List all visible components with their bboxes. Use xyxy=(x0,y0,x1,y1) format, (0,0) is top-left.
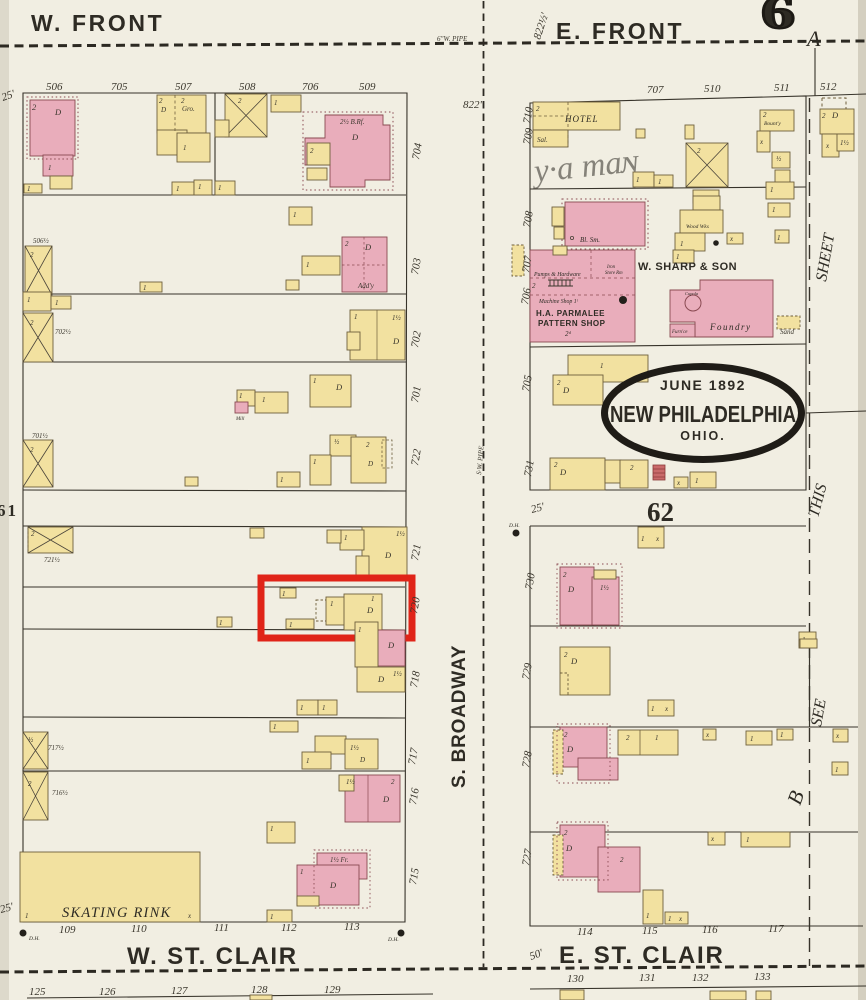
svg-text:1: 1 xyxy=(600,362,604,370)
svg-text:707: 707 xyxy=(647,84,664,96)
svg-text:Bount'y: Bount'y xyxy=(764,121,781,127)
svg-text:2ᵈ: 2ᵈ xyxy=(565,330,572,338)
svg-text:D: D xyxy=(570,656,578,666)
svg-text:1: 1 xyxy=(770,186,774,194)
svg-text:Gro.: Gro. xyxy=(182,105,195,113)
svg-text:1: 1 xyxy=(636,176,640,184)
svg-text:1: 1 xyxy=(835,766,839,774)
svg-text:E. ST. CLAIR: E. ST. CLAIR xyxy=(559,942,725,969)
svg-text:Furn'ce: Furn'ce xyxy=(671,330,688,335)
svg-text:1: 1 xyxy=(262,396,266,404)
svg-text:Iron: Iron xyxy=(606,265,616,270)
svg-text:1: 1 xyxy=(300,868,304,876)
svg-text:706: 706 xyxy=(302,81,319,93)
svg-text:508: 508 xyxy=(239,81,256,93)
svg-text:PATTERN SHOP: PATTERN SHOP xyxy=(538,319,606,328)
svg-text:1: 1 xyxy=(330,600,334,608)
svg-text:1: 1 xyxy=(655,734,659,742)
svg-text:1: 1 xyxy=(25,912,29,920)
svg-text:1: 1 xyxy=(218,184,222,192)
svg-text:822': 822' xyxy=(463,99,483,111)
svg-text:61: 61 xyxy=(0,501,18,520)
svg-text:1: 1 xyxy=(322,704,326,712)
svg-text:1½ Fr.: 1½ Fr. xyxy=(330,856,349,864)
svg-text:2: 2 xyxy=(366,441,370,449)
svg-text:D: D xyxy=(387,640,395,650)
svg-text:D: D xyxy=(392,336,400,346)
svg-text:D: D xyxy=(54,107,62,117)
svg-text:511: 511 xyxy=(774,82,790,94)
svg-text:D.H.: D.H. xyxy=(387,937,399,943)
svg-text:Machine Shop 1⁭ᵗ: Machine Shop 1⁭ᵗ xyxy=(538,299,579,305)
svg-text:717½: 717½ xyxy=(48,744,65,752)
svg-text:A: A xyxy=(805,26,821,51)
svg-text:D: D xyxy=(329,880,337,890)
svg-text:D: D xyxy=(351,132,359,142)
svg-text:1: 1 xyxy=(143,284,147,292)
svg-text:1½: 1½ xyxy=(600,584,610,592)
svg-text:D: D xyxy=(831,110,839,120)
svg-text:1½: 1½ xyxy=(346,778,356,786)
svg-text:133: 133 xyxy=(754,971,771,983)
svg-text:129: 129 xyxy=(324,984,341,996)
svg-text:D: D xyxy=(377,674,385,684)
svg-text:Bl. Sm.: Bl. Sm. xyxy=(580,236,600,244)
svg-text:2: 2 xyxy=(564,651,568,659)
svg-text:702½: 702½ xyxy=(55,328,72,336)
svg-text:½: ½ xyxy=(28,736,34,744)
svg-text:1½: 1½ xyxy=(350,744,360,752)
svg-text:2: 2 xyxy=(697,147,701,155)
svg-text:1: 1 xyxy=(641,535,645,543)
svg-text:2: 2 xyxy=(626,734,630,742)
svg-text:D: D xyxy=(565,843,573,853)
svg-text:1: 1 xyxy=(780,731,784,739)
svg-text:117: 117 xyxy=(768,923,784,935)
svg-text:110: 110 xyxy=(131,923,147,935)
svg-text:D.H.: D.H. xyxy=(508,523,520,529)
svg-text:1: 1 xyxy=(293,211,297,219)
svg-text:1: 1 xyxy=(270,825,274,833)
svg-text:2: 2 xyxy=(532,282,536,290)
svg-text:506½: 506½ xyxy=(33,237,50,245)
svg-text:D: D xyxy=(562,385,570,395)
svg-text:D: D xyxy=(366,605,374,615)
svg-text:2: 2 xyxy=(181,97,185,105)
svg-text:H.A. PARMALEE: H.A. PARMALEE xyxy=(536,309,605,318)
svg-text:1: 1 xyxy=(651,705,655,713)
svg-text:D: D xyxy=(567,584,575,594)
svg-text:D: D xyxy=(160,106,166,114)
svg-text:1: 1 xyxy=(358,626,362,634)
svg-text:2: 2 xyxy=(159,97,163,105)
svg-text:716½: 716½ xyxy=(52,789,69,797)
svg-text:1: 1 xyxy=(176,185,180,193)
svg-text:1: 1 xyxy=(289,621,293,629)
svg-text:2: 2 xyxy=(28,780,32,788)
svg-text:W. FRONT: W. FRONT xyxy=(31,10,164,36)
svg-text:721½: 721½ xyxy=(44,556,61,564)
svg-text:1: 1 xyxy=(354,313,358,321)
svg-text:2: 2 xyxy=(564,731,568,739)
svg-text:1: 1 xyxy=(55,299,59,307)
svg-text:1: 1 xyxy=(306,757,310,765)
svg-text:½: ½ xyxy=(776,155,782,163)
svg-text:HOTEL: HOTEL xyxy=(564,114,599,124)
svg-text:2: 2 xyxy=(238,97,242,105)
svg-text:1: 1 xyxy=(668,915,672,923)
svg-text:506: 506 xyxy=(46,81,63,93)
svg-text:2: 2 xyxy=(345,240,349,248)
svg-text:D: D xyxy=(367,460,373,468)
svg-text:Wood Wks: Wood Wks xyxy=(686,224,709,230)
svg-text:NEW PHILADELPHIA: NEW PHILADELPHIA xyxy=(610,401,796,427)
svg-text:1: 1 xyxy=(306,261,310,269)
svg-text:2: 2 xyxy=(30,319,34,327)
svg-text:1: 1 xyxy=(300,704,304,712)
svg-text:2: 2 xyxy=(30,251,34,259)
svg-text:1: 1 xyxy=(750,735,754,743)
svg-text:1: 1 xyxy=(282,590,286,598)
svg-text:D: D xyxy=(335,382,343,392)
svg-text:Sal.: Sal. xyxy=(537,136,548,144)
svg-text:D: D xyxy=(359,756,365,764)
svg-text:2: 2 xyxy=(310,147,314,155)
svg-text:D.H.: D.H. xyxy=(28,936,40,942)
svg-text:1: 1 xyxy=(198,183,202,191)
svg-text:1½: 1½ xyxy=(393,670,403,678)
svg-text:2: 2 xyxy=(563,571,567,579)
svg-text:1: 1 xyxy=(772,206,776,214)
svg-text:1½: 1½ xyxy=(392,314,402,322)
svg-text:705: 705 xyxy=(111,81,128,93)
svg-text:2: 2 xyxy=(630,464,634,472)
svg-text:Pumps & Hardware: Pumps & Hardware xyxy=(533,272,581,278)
svg-text:2: 2 xyxy=(30,446,34,454)
svg-text:1½: 1½ xyxy=(840,139,850,147)
svg-text:1: 1 xyxy=(274,99,278,107)
svg-text:S. BROADWAY: S. BROADWAY xyxy=(449,645,470,788)
svg-text:W. SHARP & SON: W. SHARP & SON xyxy=(638,261,737,273)
svg-text:109: 109 xyxy=(59,924,76,936)
svg-text:1: 1 xyxy=(219,619,223,627)
svg-text:1: 1 xyxy=(646,912,650,920)
svg-text:1: 1 xyxy=(280,476,284,484)
svg-text:115: 115 xyxy=(642,925,658,937)
svg-text:132: 132 xyxy=(692,972,709,984)
svg-text:1: 1 xyxy=(344,534,348,542)
svg-text:½: ½ xyxy=(334,438,340,446)
svg-text:510: 510 xyxy=(704,83,721,95)
svg-text:2: 2 xyxy=(763,111,767,119)
svg-text:507: 507 xyxy=(175,81,192,93)
svg-text:111: 111 xyxy=(214,922,229,934)
svg-text:SKATING RINK: SKATING RINK xyxy=(62,905,171,921)
svg-text:2: 2 xyxy=(557,379,561,387)
svg-text:6"W. PIPE: 6"W. PIPE xyxy=(437,35,468,43)
svg-text:2: 2 xyxy=(391,778,395,786)
svg-text:1: 1 xyxy=(371,595,375,603)
svg-text:2: 2 xyxy=(554,461,558,469)
svg-text:Cupola: Cupola xyxy=(685,291,699,296)
svg-text:1: 1 xyxy=(777,234,781,242)
svg-text:1½: 1½ xyxy=(396,530,406,538)
svg-text:114: 114 xyxy=(577,926,593,938)
svg-text:D: D xyxy=(364,242,372,252)
svg-text:62: 62 xyxy=(647,497,674,527)
svg-text:OHIO.: OHIO. xyxy=(680,429,725,443)
svg-text:1: 1 xyxy=(676,253,680,261)
svg-text:1: 1 xyxy=(680,240,684,248)
svg-text:1: 1 xyxy=(270,913,274,921)
svg-text:Sand: Sand xyxy=(780,328,795,336)
svg-text:116: 116 xyxy=(702,924,718,936)
svg-text:2: 2 xyxy=(822,112,826,120)
svg-text:W. ST. CLAIR: W. ST. CLAIR xyxy=(127,943,298,970)
svg-text:126: 126 xyxy=(99,986,116,998)
svg-text:6: 6 xyxy=(761,0,795,39)
svg-text:1: 1 xyxy=(239,392,243,400)
svg-text:1: 1 xyxy=(313,458,317,466)
svg-text:701½: 701½ xyxy=(32,432,49,440)
svg-text:1: 1 xyxy=(695,477,699,485)
svg-text:D: D xyxy=(566,744,574,754)
svg-text:1: 1 xyxy=(27,296,31,304)
svg-text:Add'y: Add'y xyxy=(357,282,375,290)
svg-text:2: 2 xyxy=(31,530,35,538)
svg-text:JUNE 1892: JUNE 1892 xyxy=(660,377,746,393)
svg-text:1: 1 xyxy=(48,164,52,172)
svg-text:131: 131 xyxy=(639,972,656,984)
svg-text:1: 1 xyxy=(658,178,662,186)
svg-text:Foundry: Foundry xyxy=(709,322,752,332)
svg-text:Mill: Mill xyxy=(235,417,245,422)
svg-text:1: 1 xyxy=(746,836,750,844)
svg-text:D: D xyxy=(384,550,392,560)
svg-text:D: D xyxy=(559,467,567,477)
svg-text:1: 1 xyxy=(27,185,31,193)
svg-text:112: 112 xyxy=(281,922,297,934)
svg-text:2: 2 xyxy=(620,856,624,864)
svg-text:2: 2 xyxy=(536,105,540,113)
svg-text:1: 1 xyxy=(273,723,277,731)
svg-text:2½ B.Rf.: 2½ B.Rf. xyxy=(340,118,365,126)
svg-text:2: 2 xyxy=(564,829,568,837)
svg-text:127: 127 xyxy=(171,985,188,997)
svg-text:113: 113 xyxy=(344,921,360,933)
svg-text:D: D xyxy=(382,794,390,804)
svg-text:125: 125 xyxy=(29,986,46,998)
svg-text:128: 128 xyxy=(251,984,268,996)
svg-text:Store Rm: Store Rm xyxy=(605,271,623,276)
svg-text:E. FRONT: E. FRONT xyxy=(556,18,684,44)
svg-text:512: 512 xyxy=(820,81,837,93)
svg-text:1: 1 xyxy=(183,144,187,152)
svg-text:130: 130 xyxy=(567,973,584,985)
svg-text:509: 509 xyxy=(359,81,376,93)
svg-text:1: 1 xyxy=(313,377,317,385)
